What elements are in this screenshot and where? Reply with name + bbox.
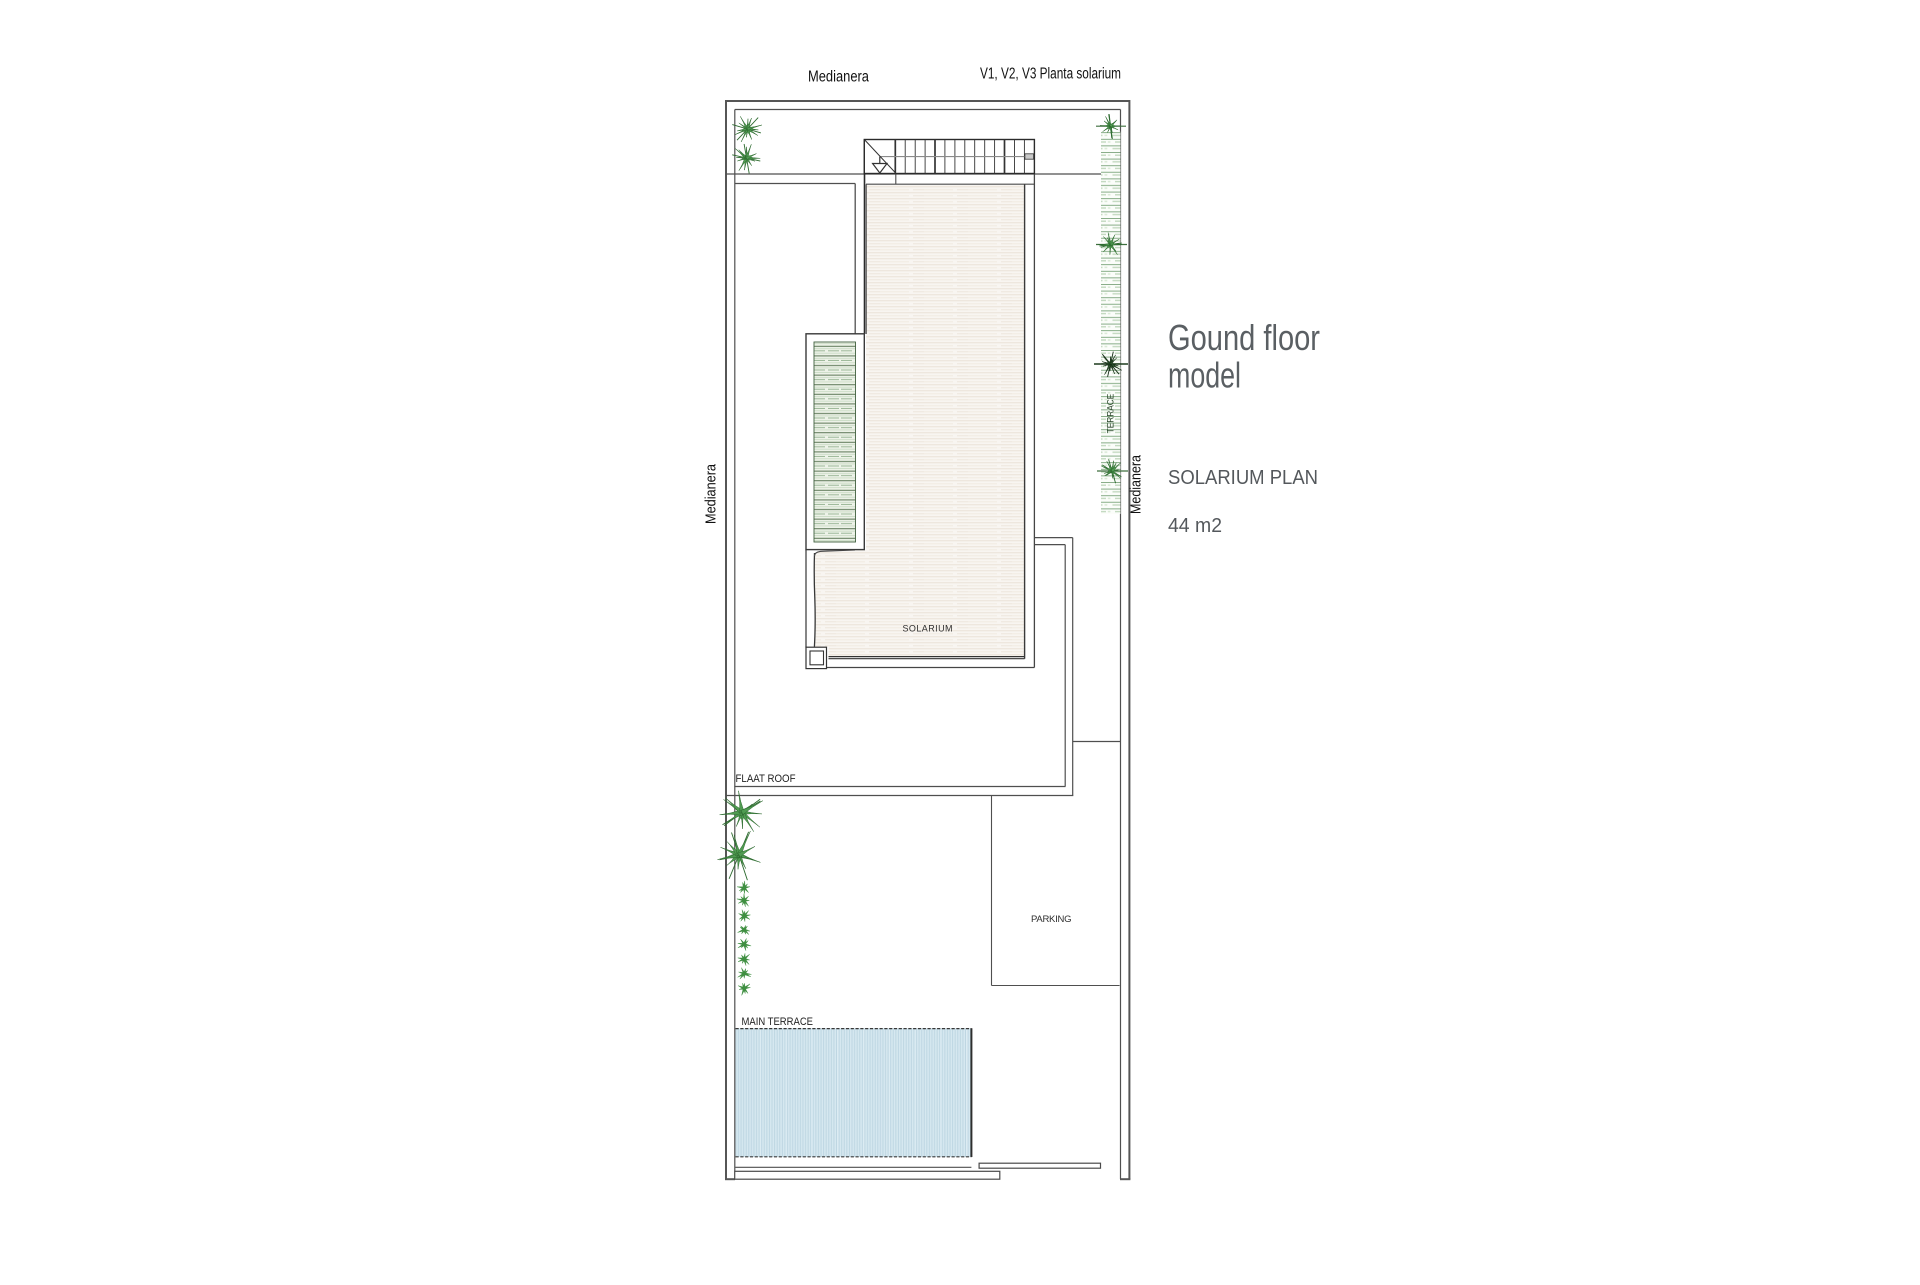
svg-text:V1, V2, V3 Planta solarium: V1, V2, V3 Planta solarium [980, 66, 1121, 83]
svg-text:PARKING: PARKING [1031, 914, 1072, 925]
svg-text:Medianera: Medianera [703, 463, 720, 524]
svg-text:Gound floor: Gound floor [1168, 317, 1320, 358]
svg-text:model: model [1168, 355, 1241, 396]
svg-text:FLAAT ROOF: FLAAT ROOF [736, 773, 796, 785]
svg-text:Medianera: Medianera [1128, 454, 1145, 514]
svg-text:MAIN TERRACE: MAIN TERRACE [742, 1016, 814, 1028]
svg-text:SOLARIUM: SOLARIUM [903, 624, 953, 634]
svg-text:44 m2: 44 m2 [1168, 515, 1222, 537]
svg-text:SOLARIUM PLAN: SOLARIUM PLAN [1168, 467, 1318, 489]
svg-text:TERRACE: TERRACE [1106, 394, 1117, 434]
svg-text:Medianera: Medianera [808, 69, 869, 86]
